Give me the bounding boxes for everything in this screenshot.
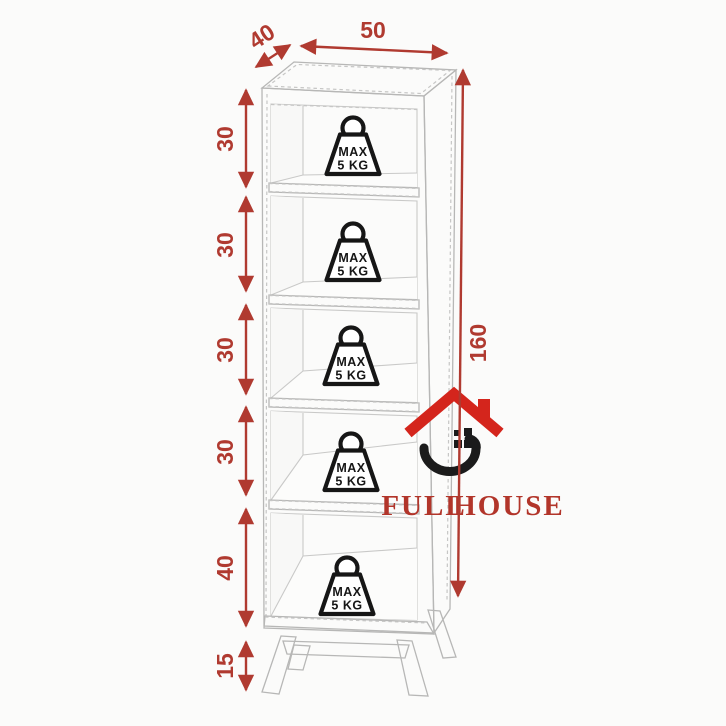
dim-label-seg-6: 15 bbox=[212, 653, 238, 679]
leg-stretcher bbox=[283, 641, 409, 658]
dim-label-depth: 40 bbox=[244, 18, 280, 54]
dim-label-seg-2: 30 bbox=[212, 232, 238, 258]
dim-label-seg-1: 30 bbox=[212, 126, 238, 152]
weight-limit-icon-3: MAX 5 KG bbox=[325, 328, 378, 385]
badge-line2: 5 KG bbox=[337, 159, 368, 173]
furniture-dimension-diagram: MAX 5 KG MAX 5 KG MAX 5 KG MAX 5 KG MAX … bbox=[0, 0, 726, 726]
width-arrow bbox=[301, 46, 447, 53]
badge-line1: MAX bbox=[336, 461, 365, 475]
badge-line1: MAX bbox=[338, 145, 367, 159]
dim-label-height: 160 bbox=[465, 324, 491, 362]
badge-line2: 5 KG bbox=[335, 475, 366, 489]
badge-line1: MAX bbox=[336, 355, 365, 369]
leg-front-left bbox=[262, 636, 296, 694]
leg-back-left bbox=[288, 645, 310, 670]
badge-line2: 5 KG bbox=[331, 599, 362, 613]
badge-line2: 5 KG bbox=[337, 265, 368, 279]
dim-label-width: 50 bbox=[360, 17, 386, 43]
badge-line2: 5 KG bbox=[335, 369, 366, 383]
badge-line1: MAX bbox=[332, 585, 361, 599]
dim-label-seg-5: 40 bbox=[212, 555, 238, 581]
weight-limit-icon-1: MAX 5 KG bbox=[327, 118, 380, 175]
dim-label-seg-4: 30 bbox=[212, 439, 238, 465]
weight-limit-icon-4: MAX 5 KG bbox=[325, 434, 378, 491]
weight-limit-icon-2: MAX 5 KG bbox=[327, 224, 380, 281]
left-stile-edge bbox=[266, 94, 267, 618]
dim-label-seg-3: 30 bbox=[212, 337, 238, 363]
badge-line1: MAX bbox=[338, 251, 367, 265]
diagram-canvas: MAX 5 KG MAX 5 KG MAX 5 KG MAX 5 KG MAX … bbox=[0, 0, 726, 726]
brand-word-2: HOUSE bbox=[453, 490, 565, 522]
leg-front-right bbox=[397, 640, 428, 696]
